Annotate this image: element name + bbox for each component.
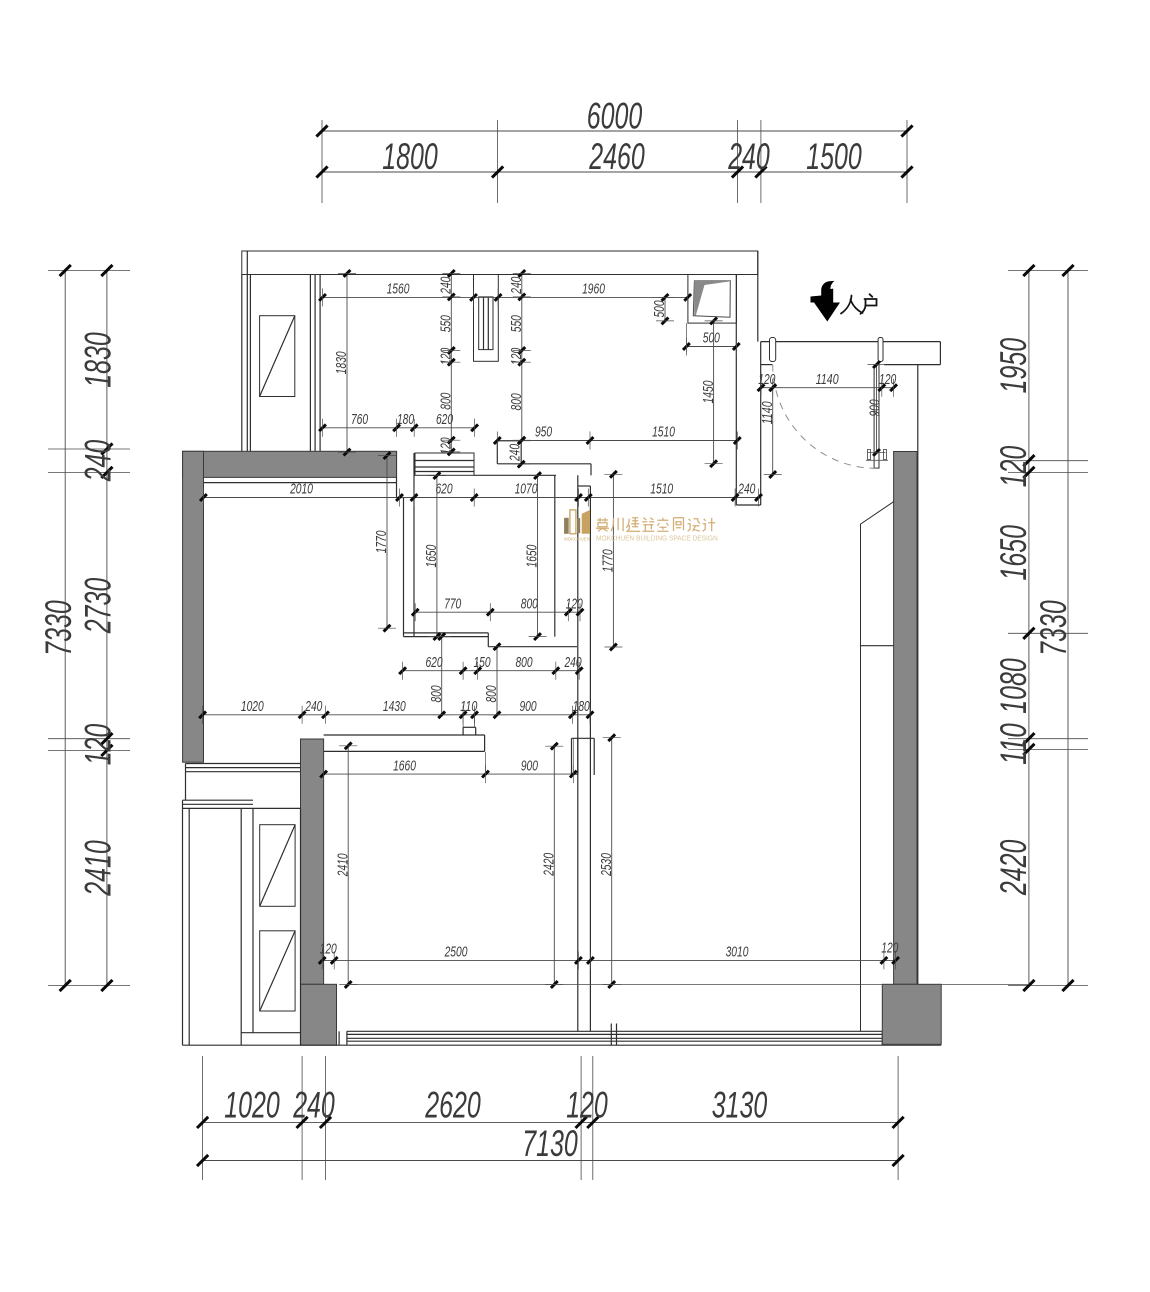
svg-text:620: 620 <box>436 411 453 428</box>
svg-text:1830: 1830 <box>333 351 350 374</box>
svg-text:550: 550 <box>437 315 454 332</box>
svg-text:2530: 2530 <box>598 853 615 877</box>
svg-text:2010: 2010 <box>289 481 313 498</box>
svg-text:7330: 7330 <box>38 600 79 656</box>
svg-text:1140: 1140 <box>759 401 776 424</box>
svg-text:800: 800 <box>508 393 525 410</box>
svg-text:240: 240 <box>728 136 771 177</box>
svg-text:120: 120 <box>437 347 454 364</box>
svg-text:1960: 1960 <box>582 281 605 298</box>
svg-text:1770: 1770 <box>600 549 617 572</box>
svg-text:1450: 1450 <box>700 380 717 403</box>
svg-text:120: 120 <box>508 347 525 364</box>
svg-text:2730: 2730 <box>78 577 119 633</box>
svg-text:1770: 1770 <box>373 530 390 553</box>
svg-text:120: 120 <box>881 940 898 957</box>
svg-text:2460: 2460 <box>589 136 645 177</box>
svg-text:550: 550 <box>508 315 525 332</box>
svg-text:120: 120 <box>320 941 337 958</box>
svg-text:180: 180 <box>397 411 414 428</box>
svg-text:2420: 2420 <box>993 839 1034 895</box>
svg-text:110: 110 <box>993 723 1034 765</box>
svg-text:MOKCHUEN: MOKCHUEN <box>564 537 590 543</box>
svg-text:120: 120 <box>879 371 896 388</box>
svg-text:1830: 1830 <box>78 332 119 388</box>
svg-text:2420: 2420 <box>541 853 558 877</box>
svg-text:800: 800 <box>515 654 532 671</box>
svg-text:2410: 2410 <box>334 853 351 877</box>
svg-text:950: 950 <box>535 424 552 441</box>
svg-text:3010: 3010 <box>726 944 749 961</box>
svg-text:770: 770 <box>444 595 461 612</box>
svg-text:150: 150 <box>473 654 490 671</box>
svg-text:1500: 1500 <box>806 136 862 177</box>
svg-text:240: 240 <box>305 698 323 715</box>
svg-text:7330: 7330 <box>1033 600 1074 656</box>
svg-text:240: 240 <box>78 439 119 482</box>
svg-text:240: 240 <box>293 1085 336 1126</box>
svg-text:1650: 1650 <box>993 525 1034 581</box>
svg-text:500: 500 <box>703 330 720 347</box>
svg-text:120: 120 <box>566 595 583 612</box>
svg-text:1020: 1020 <box>224 1085 280 1126</box>
svg-text:1800: 1800 <box>382 136 438 177</box>
svg-text:240: 240 <box>564 654 582 671</box>
svg-text:1020: 1020 <box>241 698 264 715</box>
svg-text:500: 500 <box>651 300 668 317</box>
svg-text:1950: 1950 <box>993 338 1034 394</box>
svg-text:1650: 1650 <box>524 544 541 567</box>
svg-text:240: 240 <box>507 444 524 462</box>
svg-text:240: 240 <box>508 276 525 294</box>
svg-text:120: 120 <box>566 1085 608 1126</box>
svg-text:1140: 1140 <box>816 371 839 388</box>
svg-text:240: 240 <box>738 481 756 498</box>
svg-text:110: 110 <box>460 698 477 715</box>
svg-text:120: 120 <box>993 445 1034 487</box>
svg-text:1080: 1080 <box>993 658 1034 714</box>
svg-text:7130: 7130 <box>522 1123 578 1164</box>
svg-text:1650: 1650 <box>423 544 440 567</box>
svg-text:180: 180 <box>573 698 590 715</box>
svg-text:1510: 1510 <box>652 424 675 441</box>
svg-text:800: 800 <box>521 595 538 612</box>
svg-text:3130: 3130 <box>712 1085 768 1126</box>
svg-text:1510: 1510 <box>650 481 673 498</box>
svg-text:2620: 2620 <box>425 1085 481 1126</box>
svg-text:6000: 6000 <box>587 96 643 137</box>
svg-text:MOKCHUEN BUILDING SPACE DESIGN: MOKCHUEN BUILDING SPACE DESIGN <box>596 534 718 543</box>
svg-text:240: 240 <box>437 276 454 294</box>
svg-text:900: 900 <box>521 757 538 774</box>
svg-text:1430: 1430 <box>383 698 406 715</box>
svg-text:1660: 1660 <box>393 757 416 774</box>
svg-text:900: 900 <box>866 399 883 416</box>
svg-text:760: 760 <box>351 411 368 428</box>
svg-text:1070: 1070 <box>515 481 538 498</box>
svg-text:620: 620 <box>425 654 442 671</box>
svg-text:900: 900 <box>519 698 536 715</box>
svg-text:800: 800 <box>428 685 445 702</box>
svg-text:800: 800 <box>437 392 454 409</box>
svg-text:120: 120 <box>437 437 454 454</box>
svg-text:2500: 2500 <box>444 944 468 961</box>
svg-text:1560: 1560 <box>387 281 410 298</box>
svg-text:2410: 2410 <box>78 840 119 896</box>
svg-text:800: 800 <box>483 685 500 702</box>
svg-text:120: 120 <box>78 723 119 765</box>
svg-text:620: 620 <box>435 481 452 498</box>
